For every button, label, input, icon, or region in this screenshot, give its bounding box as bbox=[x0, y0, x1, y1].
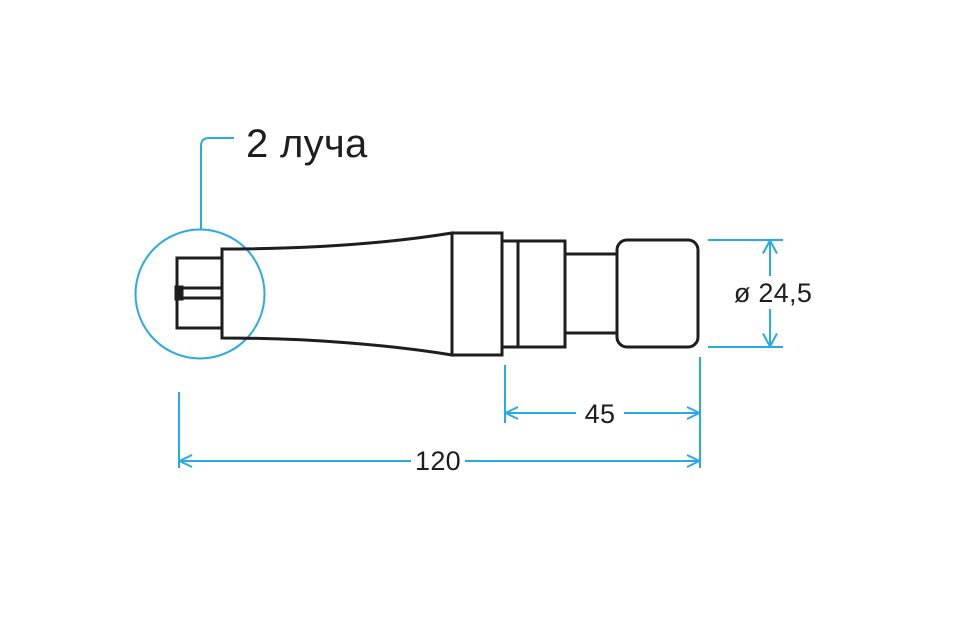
tip-outline bbox=[177, 258, 222, 328]
callout-label: 2 луча bbox=[246, 122, 368, 166]
device-outline bbox=[175, 233, 699, 355]
collar-outline bbox=[452, 233, 502, 355]
dimension-length-120: 120 bbox=[179, 357, 700, 476]
callout-leader-line bbox=[201, 138, 234, 229]
ring-outline bbox=[502, 241, 518, 347]
tip-slot-closed-end bbox=[175, 286, 184, 301]
dimension-length-45: 45 bbox=[505, 365, 700, 429]
dimension-120-label: 120 bbox=[415, 446, 461, 476]
dimension-diameter-label: ø 24,5 bbox=[734, 278, 812, 308]
body-taper-outline bbox=[222, 233, 452, 355]
dimension-45-label: 45 bbox=[585, 399, 616, 429]
nut-outline bbox=[518, 241, 565, 347]
dimension-diameter: ø 24,5 bbox=[708, 240, 812, 347]
technical-drawing: ø 24,5 45 120 2 луча bbox=[0, 0, 960, 640]
drawing-canvas: ø 24,5 45 120 2 луча bbox=[0, 0, 960, 640]
end-cap-outline bbox=[617, 240, 698, 347]
neck-outline bbox=[565, 254, 617, 333]
tip-slot bbox=[177, 288, 222, 298]
